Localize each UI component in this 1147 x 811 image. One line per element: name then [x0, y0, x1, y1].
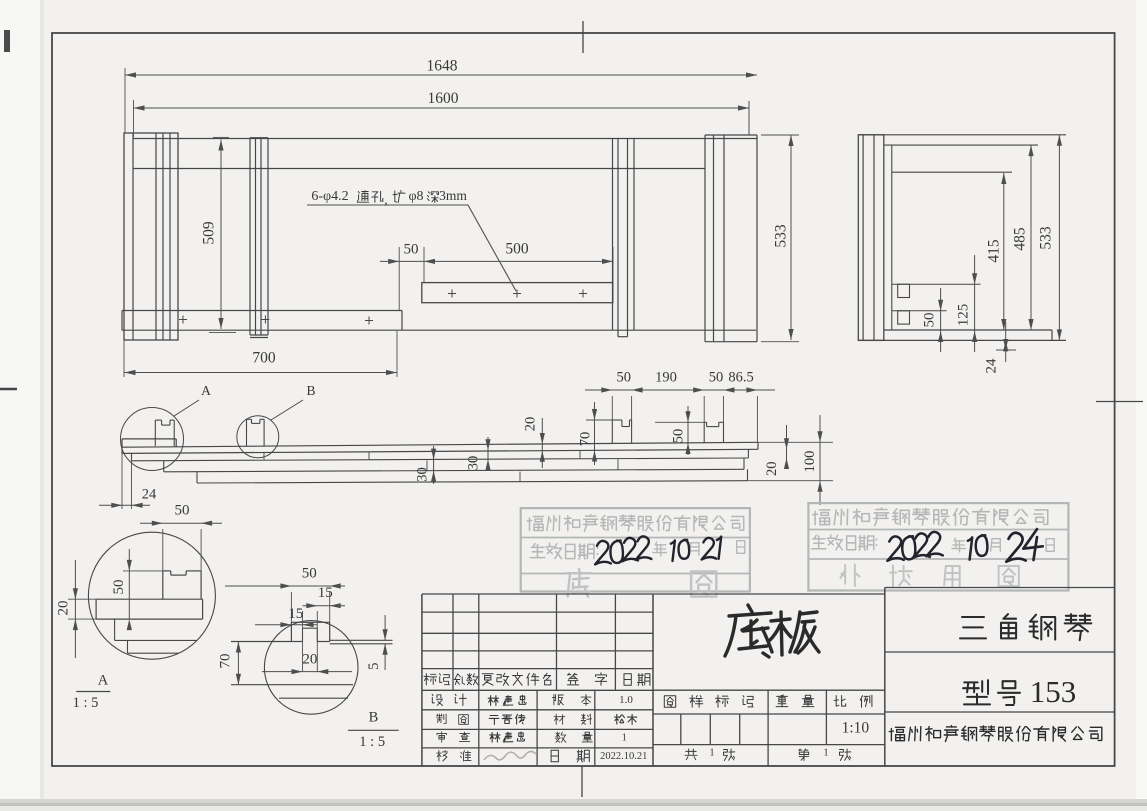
svg-text:50: 50 [111, 580, 127, 595]
svg-text:1: 1 [823, 747, 828, 758]
svg-text:50: 50 [670, 429, 686, 444]
svg-text:φ8: φ8 [408, 189, 423, 204]
svg-text:3mm: 3mm [439, 188, 467, 203]
svg-text:50: 50 [709, 369, 724, 385]
svg-text:125: 125 [955, 304, 971, 327]
svg-text:B: B [306, 383, 315, 398]
svg-text:1 : 5: 1 : 5 [359, 734, 385, 750]
svg-text:30: 30 [414, 467, 430, 482]
svg-text:190: 190 [655, 369, 677, 385]
svg-text:24: 24 [142, 486, 157, 502]
svg-text:50: 50 [302, 566, 317, 582]
svg-text:533: 533 [773, 224, 790, 248]
svg-text:415: 415 [986, 239, 1003, 263]
svg-text:A: A [201, 383, 211, 398]
svg-text:50: 50 [617, 369, 632, 385]
svg-text:50: 50 [404, 241, 419, 257]
svg-text:6-φ4.2: 6-φ4.2 [311, 189, 348, 204]
svg-text:70: 70 [217, 654, 233, 669]
svg-text:1.0: 1.0 [619, 694, 633, 706]
svg-text:2022.10.21: 2022.10.21 [600, 751, 647, 762]
svg-text:1: 1 [709, 747, 714, 758]
svg-text:1 : 5: 1 : 5 [73, 695, 99, 711]
svg-text:485: 485 [1012, 227, 1029, 251]
svg-text:15: 15 [288, 606, 303, 622]
svg-text:509: 509 [201, 221, 218, 245]
svg-text:5: 5 [366, 662, 382, 670]
svg-text:1600: 1600 [428, 90, 459, 107]
svg-text:A: A [98, 672, 109, 688]
svg-text:533: 533 [1038, 226, 1055, 250]
svg-text:20: 20 [302, 652, 317, 668]
svg-text:24: 24 [983, 358, 999, 374]
svg-text:1648: 1648 [427, 58, 458, 75]
svg-text:B: B [369, 709, 379, 725]
svg-text:15: 15 [318, 585, 333, 601]
svg-text:1:10: 1:10 [842, 719, 870, 736]
svg-text:30: 30 [466, 456, 482, 471]
svg-text:20: 20 [55, 601, 71, 616]
svg-text:100: 100 [802, 451, 818, 473]
svg-text::: : [874, 533, 878, 550]
svg-text:50: 50 [921, 313, 937, 328]
svg-text:500: 500 [505, 241, 529, 258]
svg-text:50: 50 [175, 502, 190, 518]
svg-text:153: 153 [1030, 674, 1077, 709]
svg-text:20: 20 [764, 461, 780, 476]
svg-text:1: 1 [622, 732, 627, 743]
svg-text:,: , [384, 193, 388, 208]
svg-text:86.5: 86.5 [728, 369, 753, 385]
svg-text:20: 20 [522, 417, 538, 432]
svg-text:700: 700 [252, 350, 276, 367]
svg-text:70: 70 [577, 432, 593, 447]
